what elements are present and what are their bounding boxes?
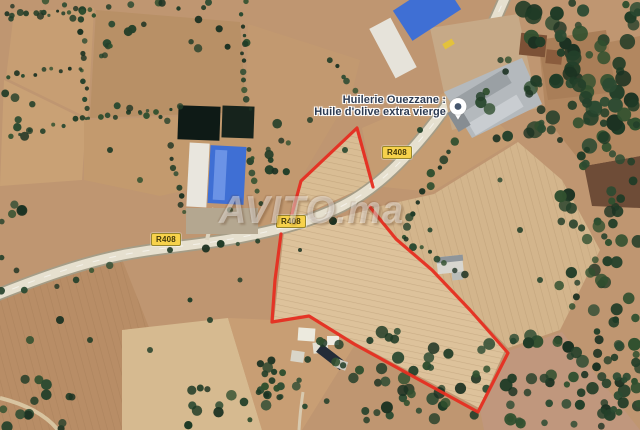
satellite-map[interactable]: R408 R408 R408 Huilerie Ouezzane : Huile… <box>0 0 640 430</box>
poi-label-line1: Huilerie Ouezzane : <box>314 94 446 106</box>
poi-huilerie-label: Huilerie Ouezzane : Huile d'olive extra … <box>314 94 446 118</box>
poi-label-line2: Huile d'olive extra vierge <box>314 106 446 118</box>
road-label-r408-3: R408 <box>151 233 181 246</box>
watermark-avito: AVITO.ma <box>219 189 404 233</box>
road-label-r408-1: R408 <box>382 146 412 159</box>
location-pin-icon[interactable] <box>447 96 469 122</box>
